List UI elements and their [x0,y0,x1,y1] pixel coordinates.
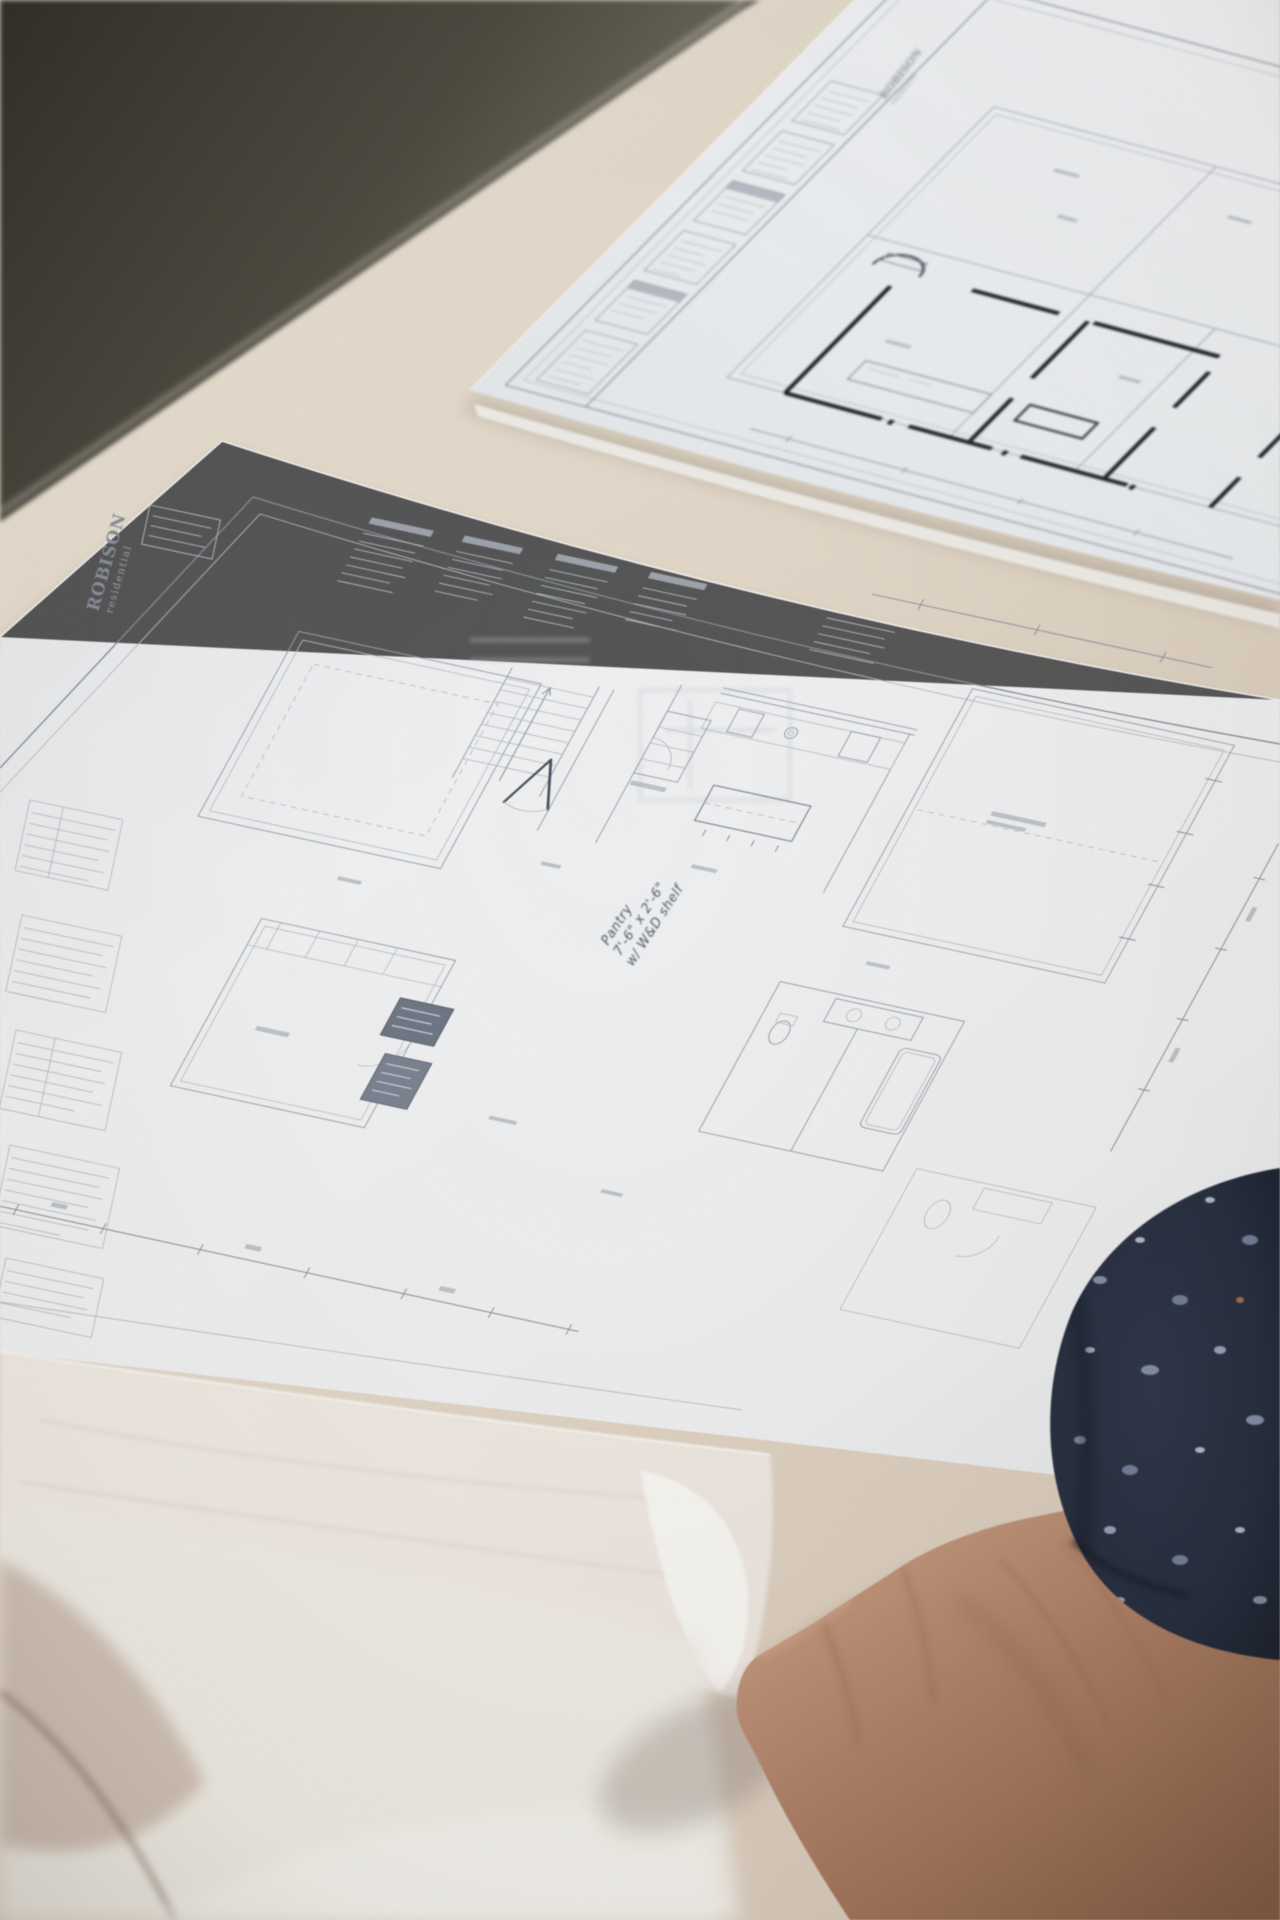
photo-blueprints-on-table: ROBISON residential ROBISON residential [0,0,1280,1920]
film-grain [0,0,1280,1920]
photo-canvas: ROBISON residential ROBISON residential [0,0,1280,1920]
